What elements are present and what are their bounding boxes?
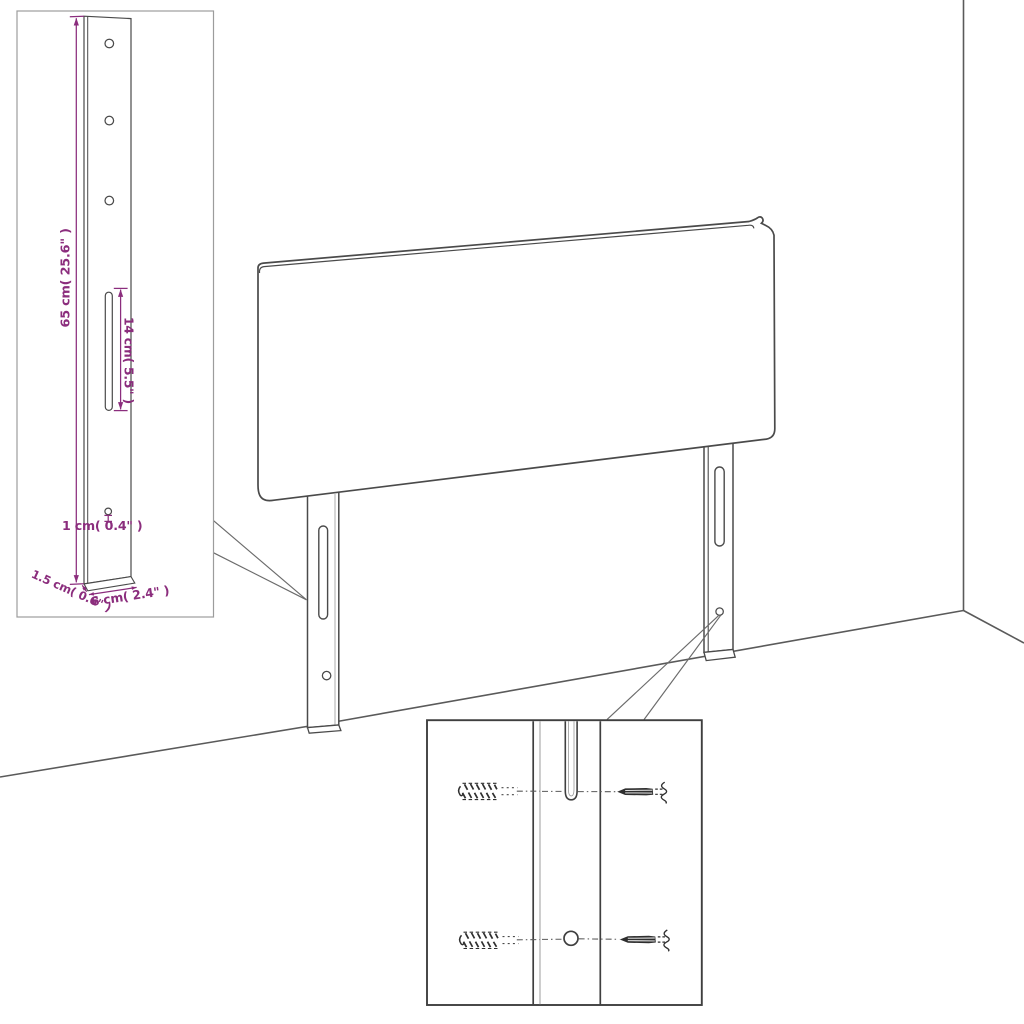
callout-line-hole-to-detail-left bbox=[607, 615, 719, 720]
callout-line-hole-to-detail-right bbox=[644, 615, 721, 719]
bracket-slot bbox=[105, 292, 112, 410]
diagram-canvas: 65 cm( 25.6" ) 14 cm( 5.5" ) 1 cm( 0.4" … bbox=[0, 0, 1024, 1024]
leg-strip-hole bbox=[564, 931, 578, 945]
dim-label-1cm: 1 cm( 0.4" ) bbox=[62, 518, 143, 533]
dim-cap-65cm-top bbox=[70, 16, 84, 17]
bracket-detail-inset: 65 cm( 25.6" ) 14 cm( 5.5" ) 1 cm( 0.4" … bbox=[17, 11, 214, 617]
right-leg-hole bbox=[716, 608, 723, 615]
headboard-panel bbox=[258, 217, 775, 501]
headboard-left-leg bbox=[308, 470, 341, 733]
dim-label-65cm: 65 cm( 25.6" ) bbox=[58, 228, 73, 327]
headboard-panel-outline bbox=[258, 217, 775, 501]
headboard-assembly-diagram: 65 cm( 25.6" ) 14 cm( 5.5" ) 1 cm( 0.4" … bbox=[0, 0, 1024, 1024]
mounting-inset-border bbox=[427, 720, 702, 1005]
bracket-hole-2 bbox=[105, 116, 114, 125]
headboard-right-leg bbox=[704, 440, 735, 661]
left-leg-slot bbox=[319, 526, 328, 619]
left-leg-hole bbox=[322, 671, 330, 679]
bracket-hole-1 bbox=[105, 39, 114, 48]
callout-lines bbox=[214, 521, 721, 720]
bracket-outline bbox=[84, 16, 135, 591]
bracket-hole-3 bbox=[105, 196, 114, 205]
dim-label-14cm: 14 cm( 5.5" ) bbox=[121, 317, 135, 404]
floor-corner-right-line bbox=[964, 611, 1024, 644]
right-leg-slot bbox=[715, 467, 724, 546]
bracket-hole-4 bbox=[105, 508, 112, 515]
mounting-detail-inset bbox=[427, 720, 702, 1005]
